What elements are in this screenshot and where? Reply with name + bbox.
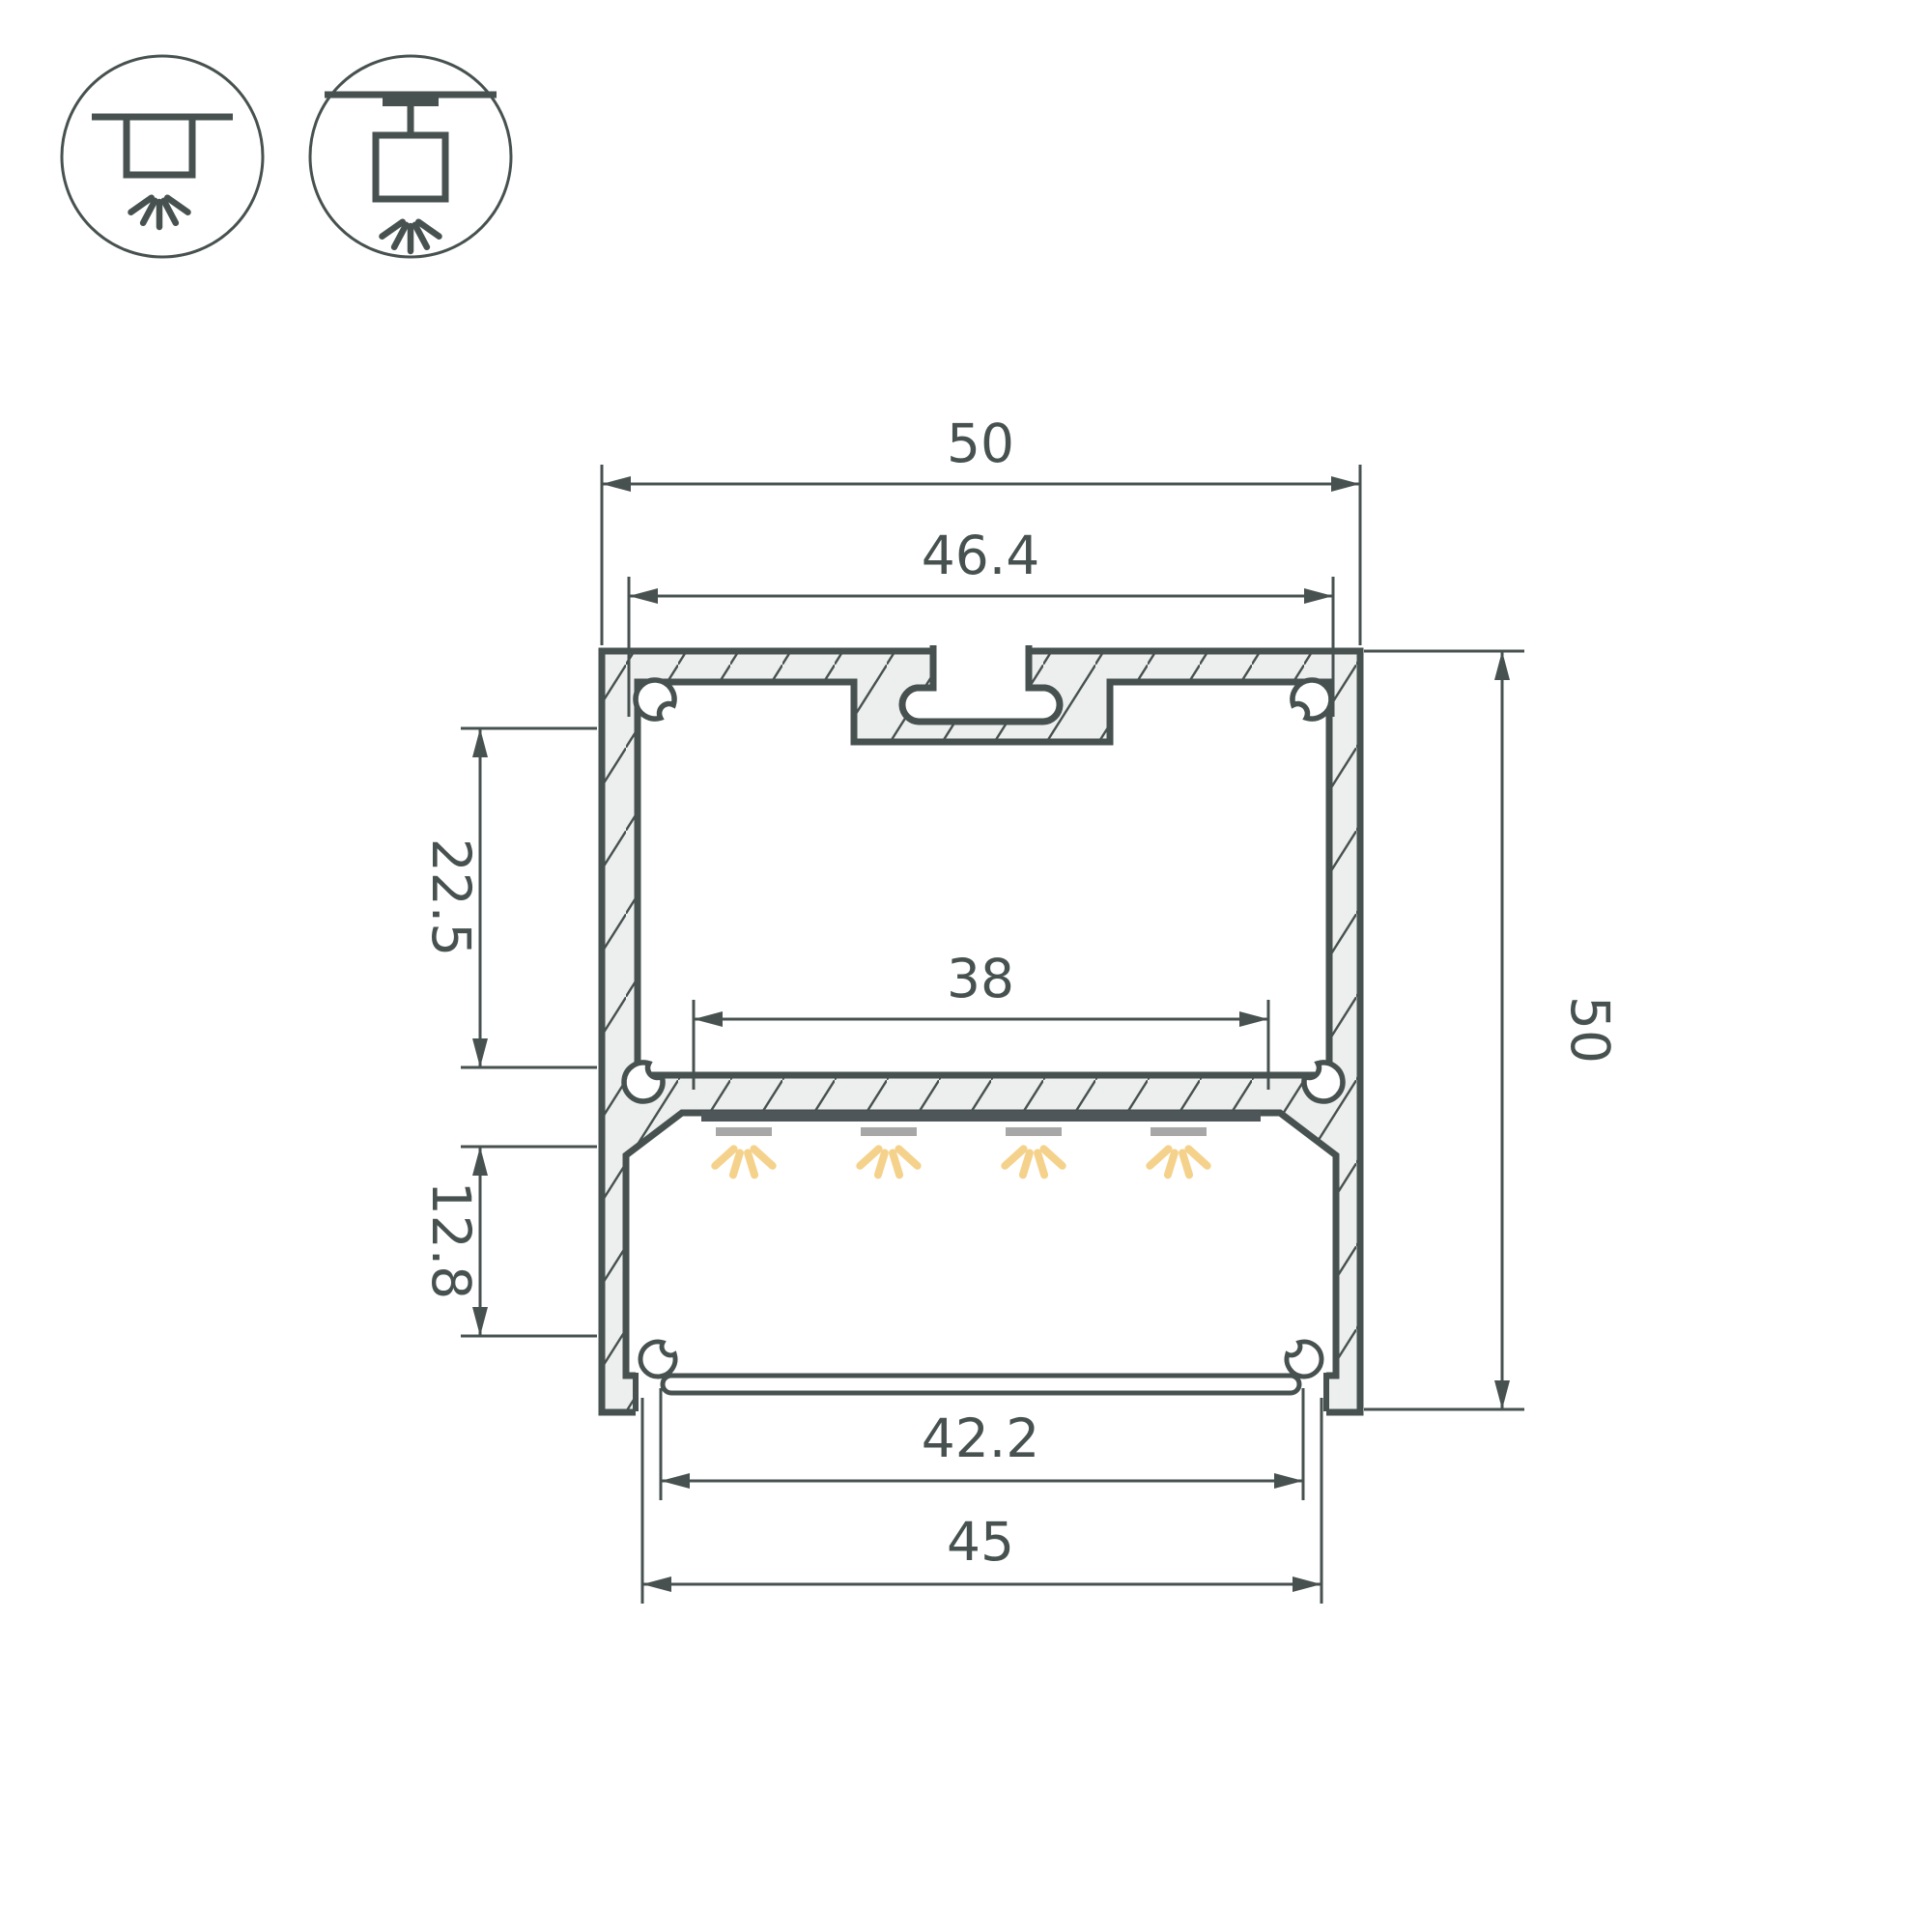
luminaire-body — [376, 135, 445, 199]
dim-label-bottom-width: 45 — [947, 1511, 1014, 1573]
led-module — [861, 1127, 917, 1136]
dim-label-overall-width: 50 — [947, 412, 1014, 474]
upper-chamber-cavity — [638, 682, 1329, 1075]
light-rays-icon — [383, 222, 440, 251]
pendant-mount-icon — [310, 56, 511, 257]
slot-opening — [925, 623, 1037, 645]
dimension-overall-height: 50 — [1364, 651, 1621, 1409]
luminaire-body — [127, 117, 192, 175]
surface-mount-icon — [62, 56, 263, 257]
dim-label-upper-chamber-height: 22.5 — [420, 838, 482, 956]
led-pcb — [701, 1111, 1261, 1122]
light-rays-icon — [131, 198, 188, 227]
diffuser — [663, 1376, 1299, 1393]
dim-label-diffuser-width: 42.2 — [922, 1407, 1039, 1469]
dimension-lower-chamber-height: 12.8 — [420, 1147, 597, 1336]
profile-drawing: 50 46.4 50 22.5 12.8 — [0, 0, 1932, 1932]
dim-label-inner-top-width: 46.4 — [922, 525, 1039, 586]
led-module — [1006, 1127, 1062, 1136]
dim-label-led-window-width: 38 — [947, 948, 1014, 1009]
dimension-upper-chamber-height: 22.5 — [420, 728, 597, 1067]
led-module — [1151, 1127, 1207, 1136]
led-module — [716, 1127, 772, 1136]
technical-drawing-canvas: 50 46.4 50 22.5 12.8 — [0, 0, 1932, 1932]
dim-label-overall-height: 50 — [1559, 996, 1621, 1064]
dim-label-lower-chamber-height: 12.8 — [420, 1181, 482, 1299]
